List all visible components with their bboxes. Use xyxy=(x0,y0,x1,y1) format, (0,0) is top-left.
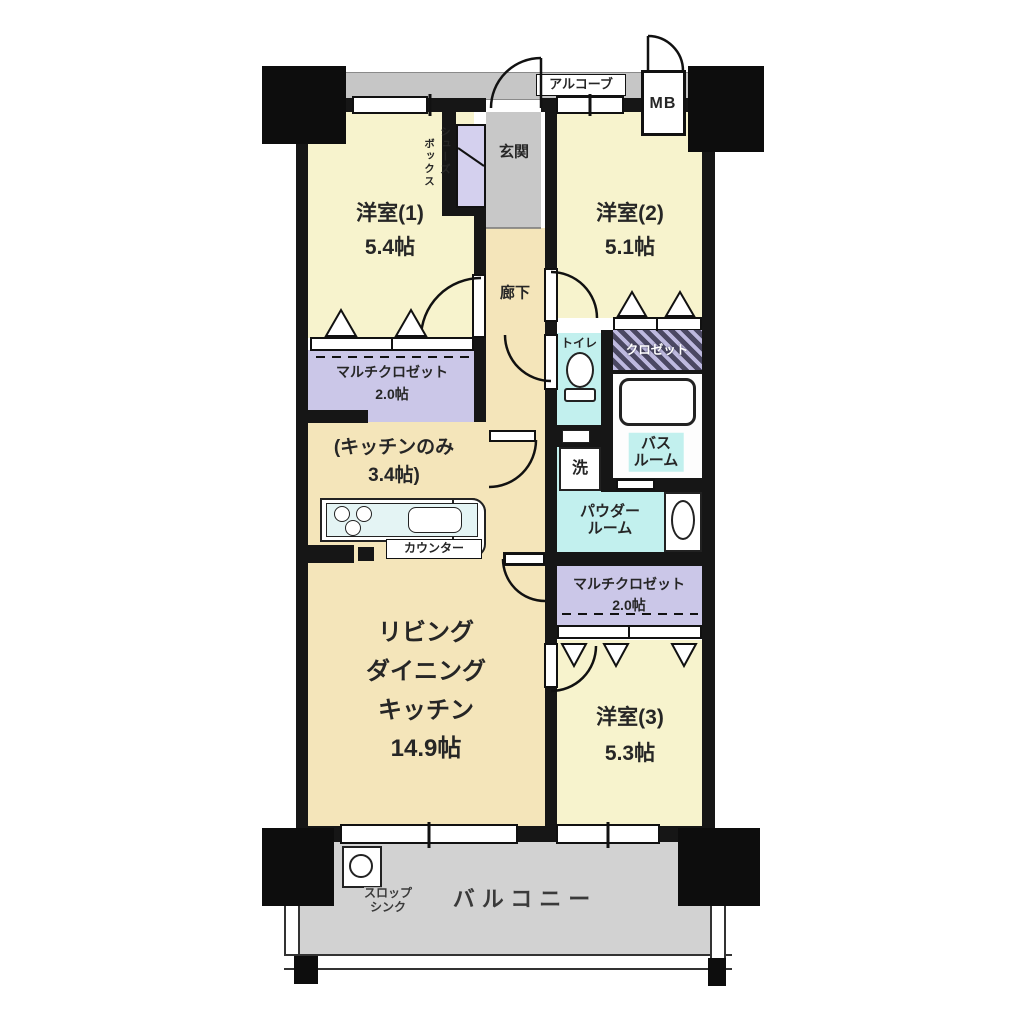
wall-bedroom1-east xyxy=(474,216,486,274)
wall-closet1-bottom xyxy=(296,410,368,423)
window-bedroom1 xyxy=(352,96,428,114)
shoebox-label-col1: シューズ xyxy=(438,126,453,176)
kitchen-note-line2: 3.4帖) xyxy=(368,465,420,487)
wall-kitchen-stub2 xyxy=(358,547,374,561)
shoebox-label-col2: ボックス xyxy=(422,138,437,188)
sliding-door-closet1 xyxy=(310,337,474,351)
multicloset-bottom-name: マルチクロゼット xyxy=(573,576,685,592)
wall-left xyxy=(296,98,308,840)
multicloset-top-name: マルチクロゼット xyxy=(336,364,448,380)
alcove-label: アルコーブ xyxy=(549,78,613,93)
shoebox-cabinet xyxy=(456,124,486,208)
bedroom2-size: 5.1帖 xyxy=(605,236,655,260)
kitchen-note-line1: (キッチンのみ xyxy=(334,437,454,459)
window-bedroom2 xyxy=(556,96,624,114)
stove-burner-icon-2 xyxy=(356,506,372,522)
bathtub-icon xyxy=(619,378,696,426)
door-leaf-corridor-ldk xyxy=(489,430,536,442)
vanity-basin-icon xyxy=(671,500,695,540)
window-bedroom3-balcony xyxy=(556,824,660,844)
pillar-bottom-left xyxy=(262,828,334,906)
wall-bath-left xyxy=(601,330,613,490)
wall-mid-c xyxy=(545,390,557,552)
bedroom3-name: 洋室(3) xyxy=(596,706,664,730)
genkan-label: 玄関 xyxy=(499,143,529,160)
window-ldk-balcony xyxy=(340,824,518,844)
ldk-name-line1: リビング xyxy=(378,619,474,647)
closet-label: クロゼット xyxy=(626,343,689,357)
toilet-label: トイレ xyxy=(561,337,597,351)
balcony-foot-left xyxy=(294,956,318,984)
wall-right xyxy=(702,112,715,826)
sliding-door-closet2 xyxy=(557,625,702,639)
stove-burner-icon-1 xyxy=(334,506,350,522)
slop-sink-label-line2: シンク xyxy=(370,900,406,914)
door-leaf-bedroom1 xyxy=(472,274,486,338)
door-leaf-bedroom3 xyxy=(544,643,558,688)
counter-label: カウンター xyxy=(404,542,464,556)
pillar-top-left xyxy=(262,66,346,144)
ldk-size: 14.9帖 xyxy=(391,735,462,763)
door-leaf-powder xyxy=(504,553,545,565)
rouka-label: 廊下 xyxy=(500,284,530,301)
entrance-floor xyxy=(486,112,541,228)
powder-label-line2: ルーム xyxy=(588,520,633,537)
multicloset-bottom-size: 2.0帖 xyxy=(612,597,645,613)
washer-label: 洗 xyxy=(572,460,588,478)
balcony-label: バルコニー xyxy=(453,886,598,911)
bedroom3-floor xyxy=(557,640,702,826)
door-leaf-toilet xyxy=(544,334,558,390)
multicloset-top-size: 2.0帖 xyxy=(375,386,408,402)
balcony-rail-bottom xyxy=(284,954,732,970)
wall-closet1-east xyxy=(474,338,486,422)
bath-label: バス ルーム xyxy=(629,433,684,472)
powder-label: パウダー ルーム xyxy=(580,503,640,538)
powder-label-line1: パウダー xyxy=(580,503,640,520)
balcony-rail-right xyxy=(710,902,726,966)
bedroom3-size: 5.3帖 xyxy=(605,742,655,766)
meter-box-label: MB xyxy=(650,95,677,113)
bath-label-line1: バス xyxy=(641,435,671,452)
wall-mid-a xyxy=(545,98,557,268)
wall-mid-e xyxy=(545,686,557,826)
ldk-name-line2: ダイニング xyxy=(366,658,486,686)
sliding-door-bedroom2-closet xyxy=(613,317,702,331)
bath-label-line2: ルーム xyxy=(634,452,679,469)
door-leaf-bedroom2 xyxy=(544,268,558,322)
wall-kitchen-stub xyxy=(296,545,354,563)
pillar-top-right xyxy=(688,66,764,152)
ldk-name-line3: キッチン xyxy=(378,697,474,725)
bedroom1-size: 5.4帖 xyxy=(365,236,415,260)
pillar-bottom-right xyxy=(678,828,760,906)
bedroom2-name: 洋室(2) xyxy=(596,202,664,226)
toilet-counter xyxy=(562,430,590,443)
floorplan-canvas: 洋室(1) 5.4帖 洋室(2) 5.1帖 洋室(3) 5.3帖 リビング ダイ… xyxy=(0,0,1024,1024)
slop-sink-label-line1: スロップ xyxy=(364,886,412,900)
wall-mid-d xyxy=(545,566,557,643)
kitchen-sink-icon xyxy=(408,507,462,533)
door-leaf-bath xyxy=(616,479,655,490)
toilet-tank-icon xyxy=(564,388,596,402)
balcony-foot-right xyxy=(708,958,726,986)
toilet-bowl-icon xyxy=(566,352,594,388)
slop-sink-basin-icon xyxy=(349,854,373,878)
slop-sink-label: スロップ シンク xyxy=(364,887,412,915)
stove-burner-icon-3 xyxy=(345,520,361,536)
bedroom1-name: 洋室(1) xyxy=(356,202,424,226)
